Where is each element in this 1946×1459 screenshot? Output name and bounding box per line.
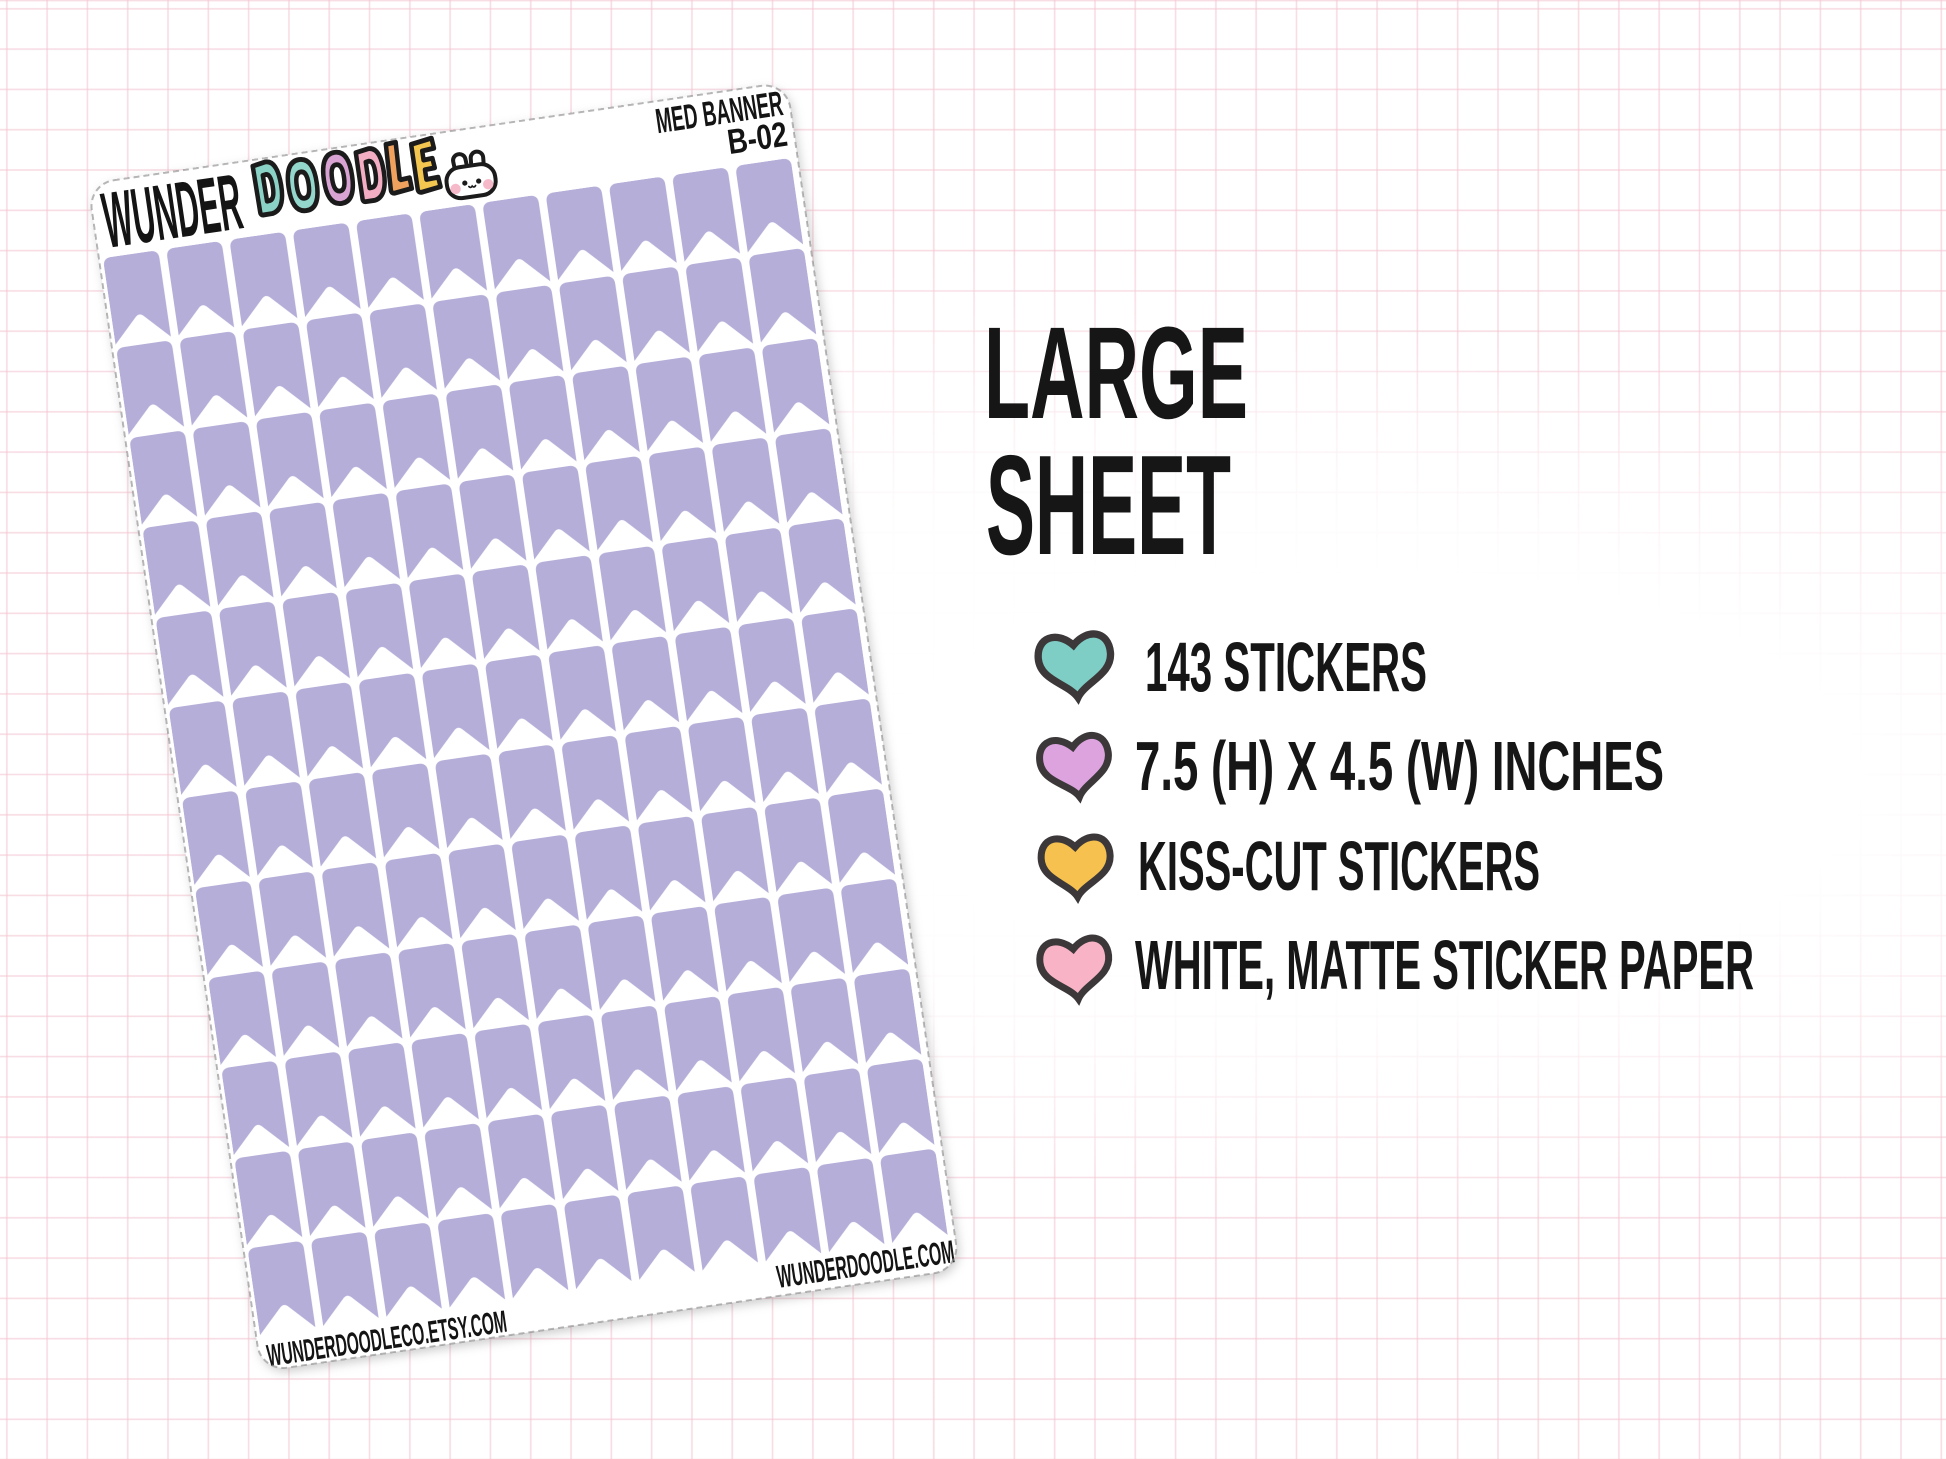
svg-text:143 STICKERS: 143 STICKERS	[1145, 628, 1427, 706]
svg-text:B-02: B-02	[725, 115, 790, 162]
svg-text:7.5 (H) X 4.5 (W) INCHES: 7.5 (H) X 4.5 (W) INCHES	[1135, 727, 1664, 805]
svg-text:KISS-CUT STICKERS: KISS-CUT STICKERS	[1138, 827, 1540, 905]
svg-text:WHITE, MATTE STICKER PAPER: WHITE, MATTE STICKER PAPER	[1135, 926, 1754, 1004]
svg-text:SHEET: SHEET	[986, 426, 1231, 585]
svg-text:LARGE: LARGE	[984, 299, 1248, 446]
